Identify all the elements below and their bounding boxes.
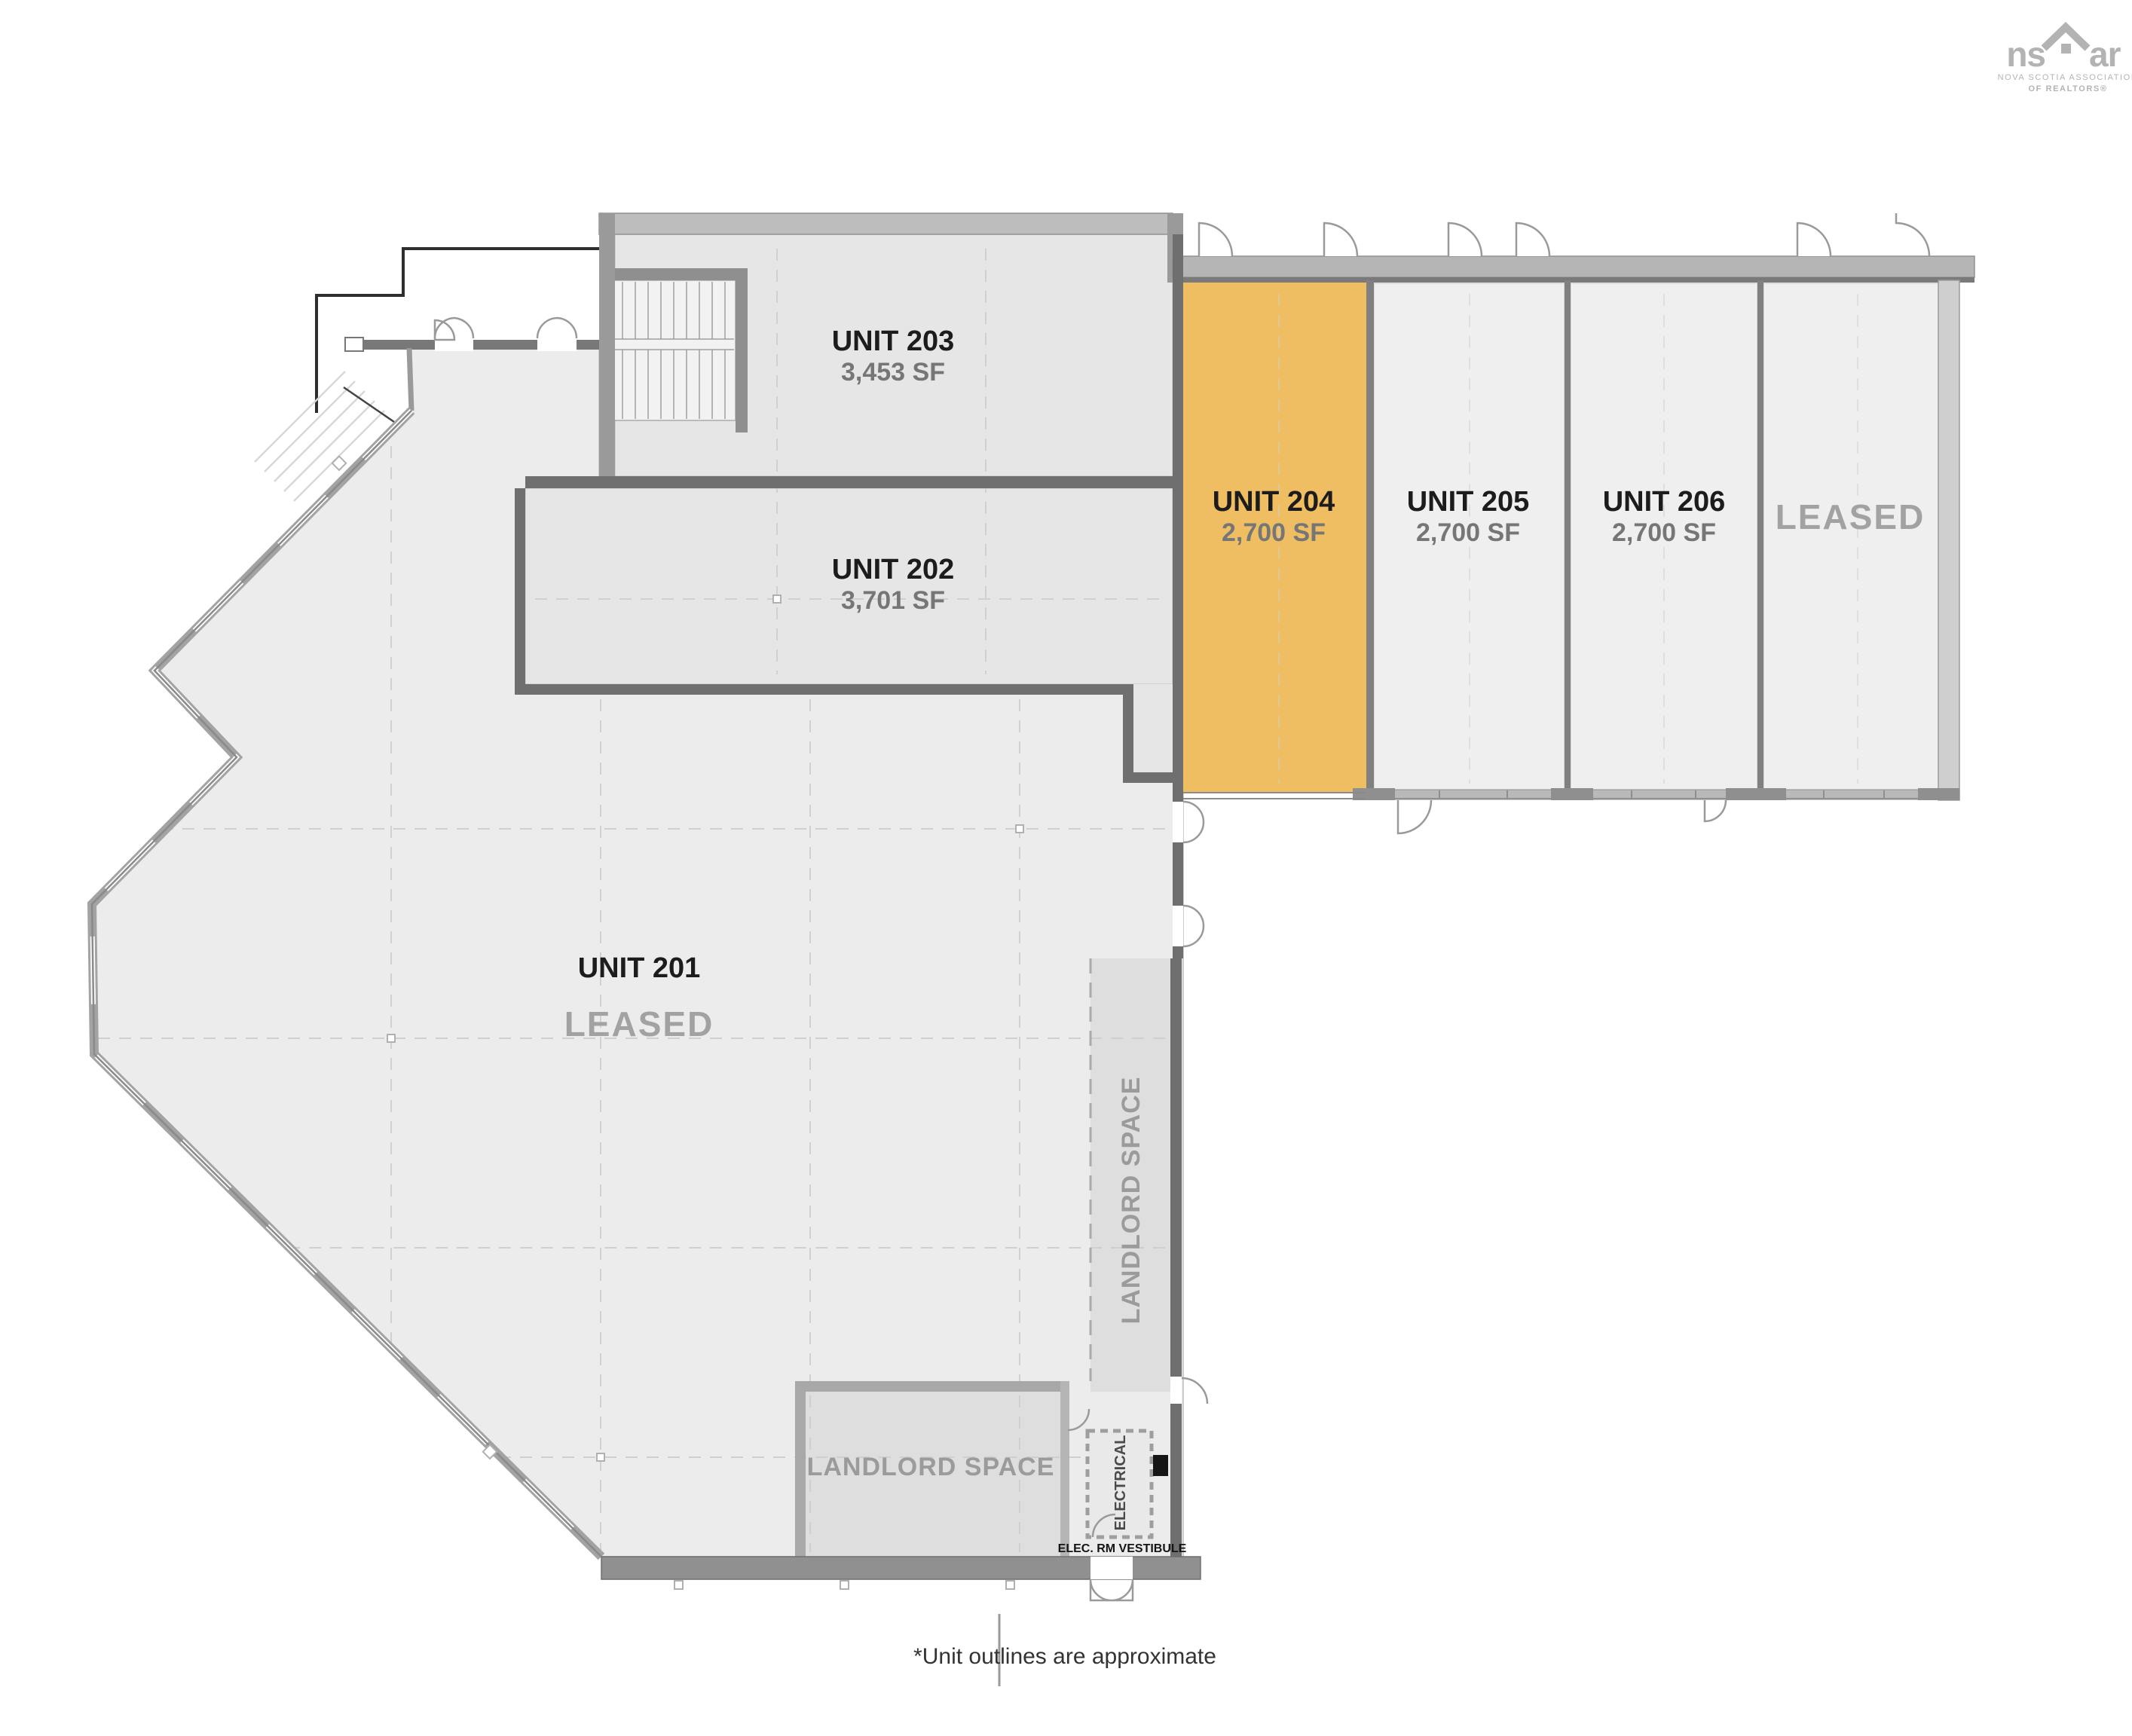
- wall-203-left: [599, 213, 615, 488]
- wall-204-left: [1173, 234, 1183, 958]
- unit-205-area: 2,700 SF: [1416, 518, 1520, 547]
- logo-text-right: ar: [2089, 35, 2121, 74]
- unit-203-label: UNIT 203: [832, 325, 955, 357]
- unit-204-label: UNIT 204: [1213, 486, 1335, 518]
- logo-tagline-2: OF REALTORS®: [2028, 84, 2107, 93]
- floor-plan-drawing: UNIT 203 3,453 SF UNIT 202 3,701 SF UNIT…: [0, 0, 2132, 1736]
- top-wall-203: [599, 213, 1173, 234]
- unit-201-status: LEASED: [564, 1004, 714, 1044]
- wall-east-outer: [1938, 280, 1959, 800]
- unit-202-area: 3,701 SF: [841, 586, 945, 615]
- unit-201-label: UNIT 201: [578, 952, 701, 984]
- unit-206-area: 2,700 SF: [1612, 518, 1716, 547]
- electrical-panel: [1153, 1455, 1168, 1476]
- nsar-logo: ns ar NOVA SCOTIA ASSOCIATION OF REALTOR…: [1998, 27, 2132, 93]
- footnote: *Unit outlines are approximate: [913, 1644, 1216, 1669]
- unit-203-area: 3,453 SF: [841, 358, 945, 387]
- leased-east-label: LEASED: [1776, 497, 1926, 536]
- vestibule-label: ELEC. RM VESTIBULE: [1058, 1542, 1187, 1555]
- wall-203-202: [525, 476, 1173, 488]
- landlord-block-label: LANDLORD SPACE: [807, 1453, 1055, 1481]
- unit-204-area: 2,700 SF: [1222, 518, 1326, 547]
- wall-strip-right: [1170, 958, 1182, 1557]
- leased-east-floor: [1763, 283, 1938, 790]
- unit-202-label: UNIT 202: [832, 554, 955, 585]
- landlord-strip-label: LANDLORD SPACE: [1117, 1077, 1146, 1325]
- footnote-group: *Unit outlines are approximate: [913, 1614, 1216, 1686]
- logo-house-door: [2061, 44, 2071, 53]
- unit-205-label: UNIT 205: [1407, 486, 1530, 518]
- top-wall-units: [1173, 256, 1974, 277]
- logo-text-left: ns: [2006, 35, 2045, 74]
- wall-205-206: [1565, 280, 1571, 793]
- logo-tagline-1: NOVA SCOTIA ASSOCIATION: [1998, 73, 2132, 82]
- electrical-label: ELECTRICAL: [1112, 1435, 1129, 1531]
- wall-206-leased: [1757, 280, 1763, 793]
- floor-fills: [92, 234, 1938, 1557]
- floor-plan-page: UNIT 203 3,453 SF UNIT 202 3,701 SF UNIT…: [0, 0, 2132, 1736]
- wall-204-205: [1366, 280, 1374, 793]
- unit-206-label: UNIT 206: [1603, 486, 1726, 518]
- staircase: [607, 268, 748, 432]
